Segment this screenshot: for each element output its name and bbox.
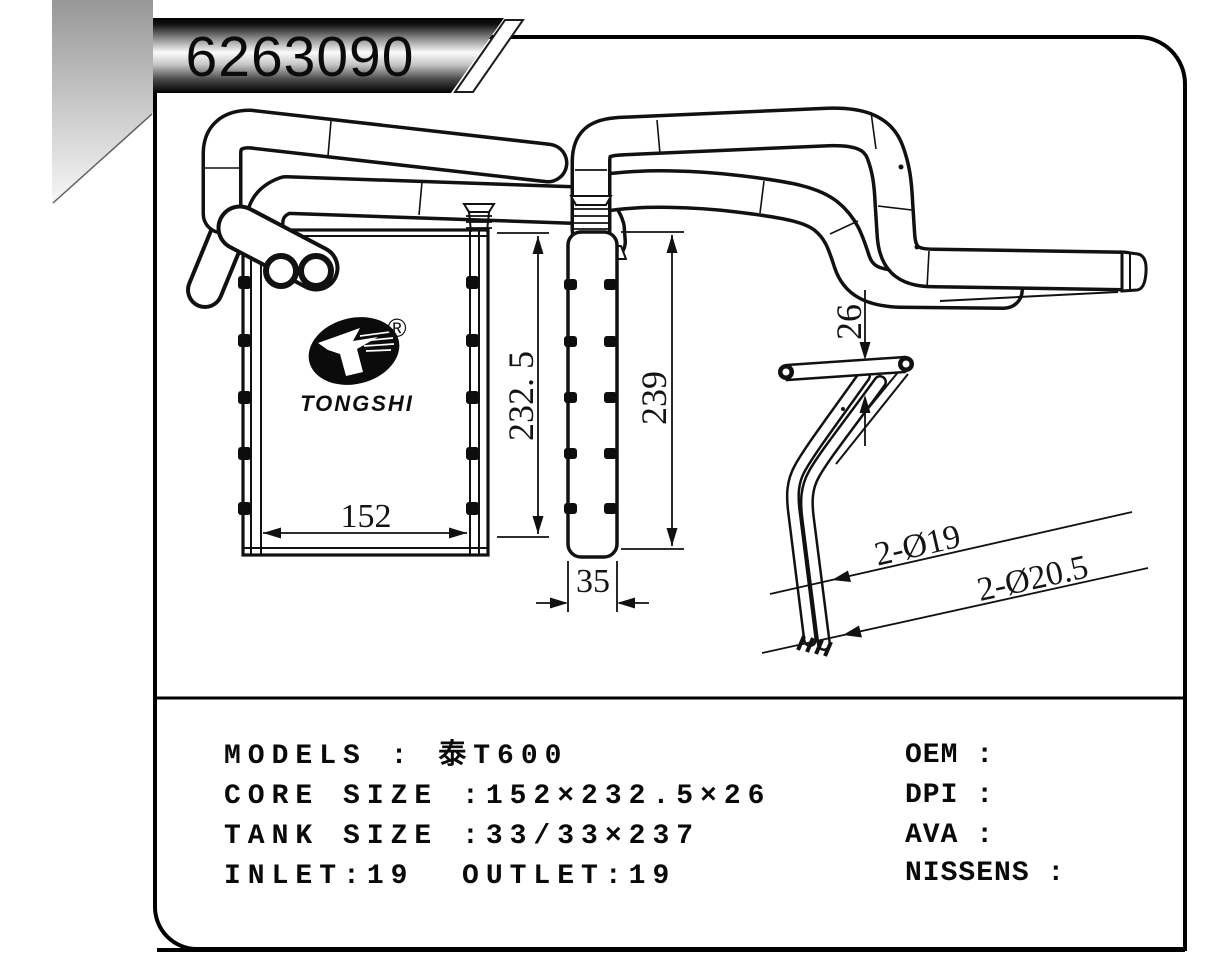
dim-tank-width-label: 35 [576,563,610,600]
technical-drawing-page: 6263090 [0,0,1215,968]
dim-overall-height-label: 239 [634,371,674,425]
pipe-opening-1 [266,256,296,286]
dim-pipe-dia-outer-label: 2-Ø20.5 [974,549,1092,609]
dim-core-width-label: 152 [341,498,392,535]
page-curl [52,0,153,203]
spec-oem: OEM : [905,740,994,772]
spec-ava: AVA : [905,820,994,852]
bracket-detail-view [778,356,914,656]
spec-inlet-outlet: INLET:19 OUTLET:19 [224,861,676,893]
part-number: 6263090 [186,25,415,89]
dim-pipe-offset-label: 26 [829,304,869,340]
title-banner: 6263090 [153,18,523,93]
pipe-assembly [591,112,1146,301]
spec-models: MODELS : 泰T600 [224,741,568,773]
registered-trademark-icon: ® [387,313,406,343]
dim-core-height-label: 232. 5 [501,351,541,441]
dim-pipe-dia-inner-label: 2-Ø19 [871,518,964,574]
brand-logo: ® TONGSHI [300,308,414,416]
spec-core-size: CORE SIZE :152×232.5×26 [224,781,771,813]
pipe-opening-2 [301,256,331,286]
brand-name: TONGSHI [300,391,414,416]
hose-end-cap [1122,252,1146,291]
dimension-labels: 152 232. 5 239 35 26 2-Ø19 2-Ø20.5 [341,304,1092,609]
spec-tank-size: TANK SIZE :33/33×237 [224,821,700,853]
front-view [205,121,626,555]
spec-dpi: DPI : [905,780,994,812]
spec-nissens: NISSENS : [905,858,1065,890]
